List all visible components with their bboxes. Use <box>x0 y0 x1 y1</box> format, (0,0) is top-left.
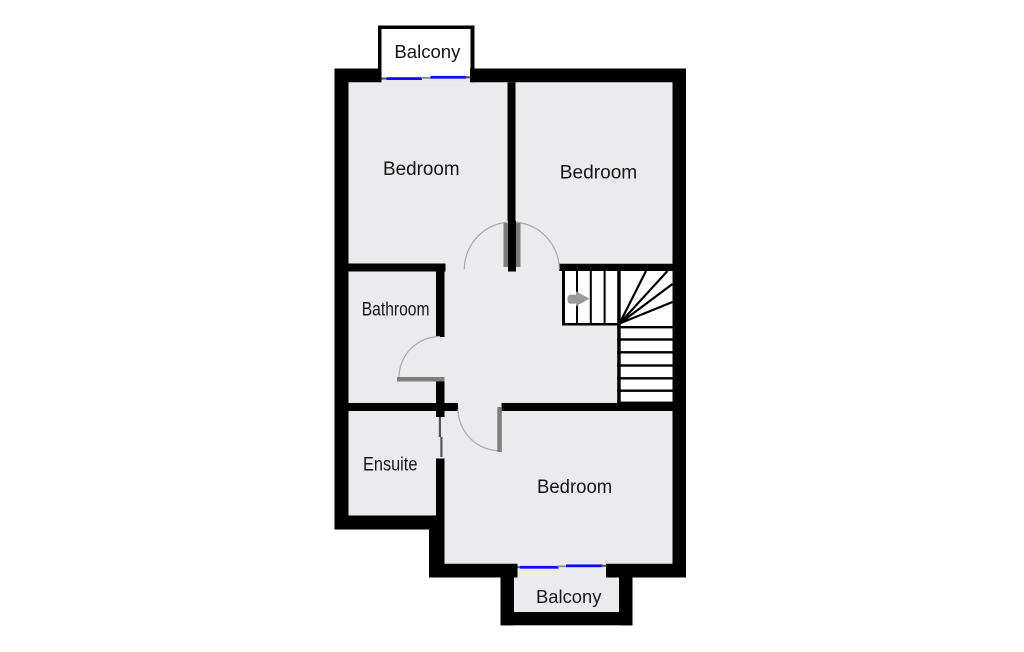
svg-text:Bedroom: Bedroom <box>560 163 637 184</box>
svg-text:Bathroom: Bathroom <box>362 300 430 321</box>
svg-text:Bedroom: Bedroom <box>383 159 460 180</box>
svg-text:Balcony: Balcony <box>394 41 461 62</box>
svg-text:Bedroom: Bedroom <box>537 476 612 498</box>
svg-text:Balcony: Balcony <box>536 586 602 607</box>
svg-text:Ensuite: Ensuite <box>363 455 417 476</box>
